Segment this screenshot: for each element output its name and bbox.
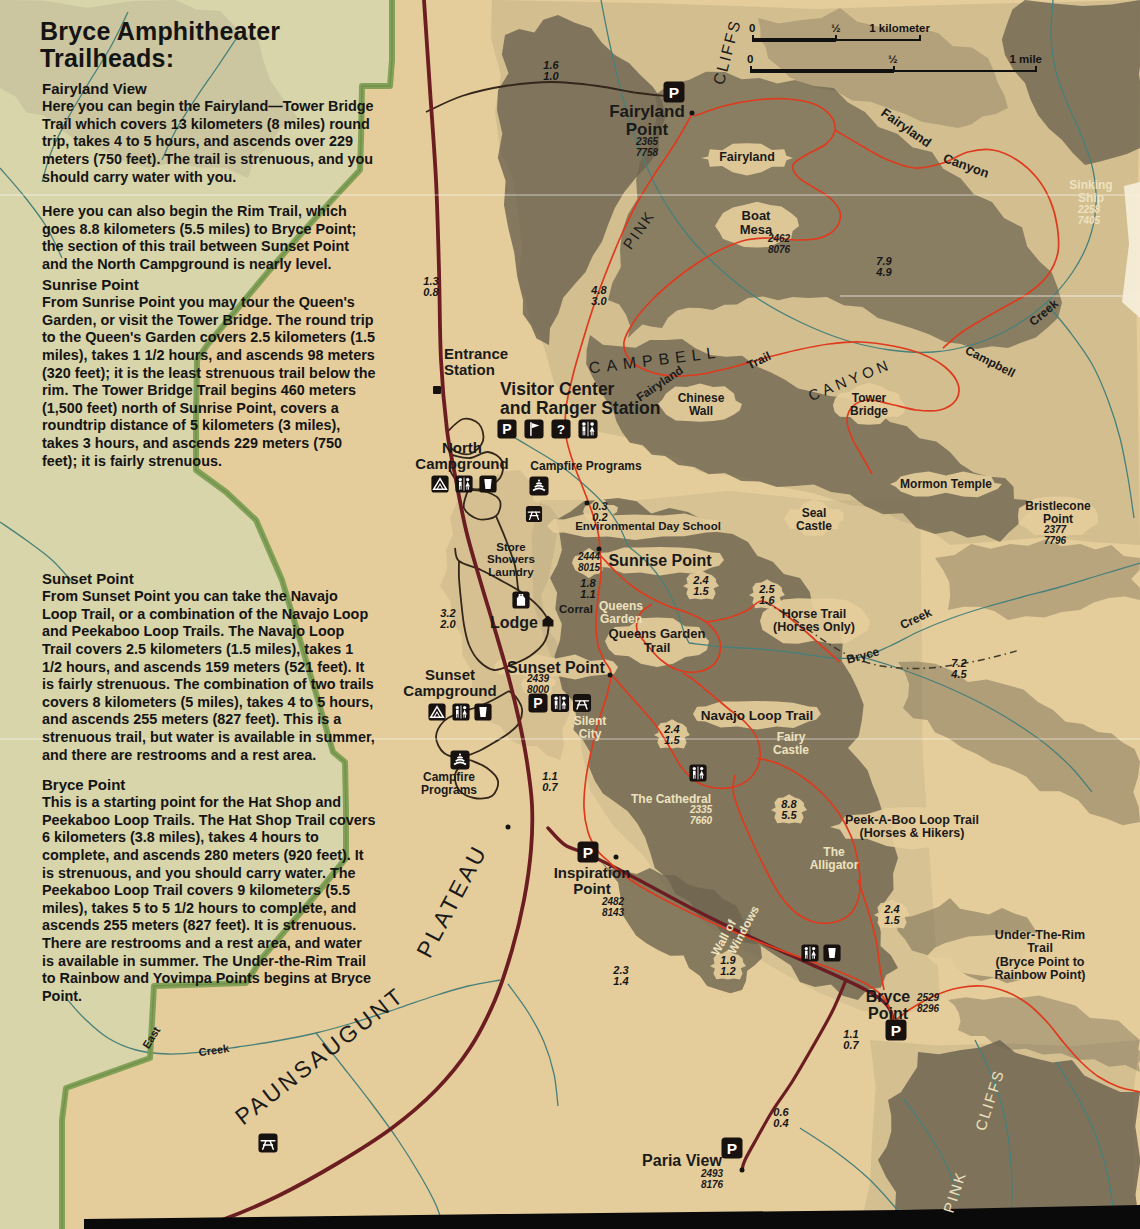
cliffs-upper-label: CLIFFS: [710, 17, 744, 86]
pink-lower-label: PINK: [941, 1169, 970, 1215]
question-icon: ?: [551, 419, 571, 439]
distance-marker: 2.41.5: [693, 575, 708, 597]
sinking-ship-elev: 2258 7405: [1078, 205, 1100, 226]
building-icon: [432, 385, 443, 396]
distance-marker: 2.51.6: [759, 584, 774, 606]
queens-garden-trail-label: Queens Garden Trail: [609, 627, 706, 655]
parking-icon: P: [497, 419, 517, 439]
parking-icon: P: [663, 81, 685, 103]
parking-icon: P: [528, 693, 548, 713]
store-icon: [512, 591, 530, 609]
point-marker-dot: [597, 547, 602, 552]
cliffs-lower-label: CLIFFS: [973, 1067, 1008, 1133]
peek-a-boo-loop-trail-label: Peek-A-Boo Loop Trail (Horses & Hikers): [845, 814, 979, 841]
campfire-icon: [450, 750, 470, 770]
point-marker-dot: [585, 501, 590, 506]
lodge-icon: [541, 614, 556, 629]
distance-marker: 1.10.7: [542, 771, 557, 793]
scale-bar-kilometer: 0 ½ 1 kilometer: [752, 22, 924, 48]
scale-half-label: ½: [888, 53, 898, 65]
parking-icon: P: [721, 1137, 743, 1159]
east-creek-label-1: East: [141, 1025, 163, 1051]
campfire-icon: [529, 476, 549, 496]
distance-marker: 1.61.0: [543, 60, 558, 82]
parking-icon: P: [577, 841, 599, 863]
corral-label: Corral: [559, 603, 593, 615]
picnic-icon: [573, 694, 592, 713]
queens-garden-label: Queens Garden: [599, 600, 643, 626]
campbell-creek-label-2: Creek: [1027, 297, 1061, 328]
bryce-amphitheater-map: CLIFFSPINKFairyland Point2365 7758Fairyl…: [0, 0, 1140, 1229]
sunset-campground-label: Sunset Campground: [403, 667, 496, 699]
east-creek-label-2: Creek: [198, 1043, 230, 1059]
visitor-center-label: Visitor Center and Ranger Station: [500, 380, 660, 417]
distance-marker: 8.85.5: [781, 799, 796, 821]
bryce-point-label: Bryce Point: [866, 988, 910, 1022]
sunset-point-label: Sunset Point: [507, 659, 605, 676]
water-icon: [474, 703, 492, 721]
under-the-rim-trail-label: Under-The-Rim Trail (Bryce Point to Rain…: [990, 929, 1090, 983]
distance-marker: 4.83.0: [591, 285, 606, 307]
sunrise-point-elev: 2444 8015: [578, 552, 600, 573]
entrance-station-label: Entrance Station: [444, 346, 508, 378]
campfire-programs-north-label: Campfire Programs: [530, 460, 641, 473]
seal-castle-label: Seal Castle: [796, 507, 832, 533]
inspiration-point-elev: 2482 8143: [602, 897, 624, 918]
section-heading: Bryce Point: [42, 776, 376, 793]
point-marker-dot: [740, 1168, 745, 1173]
svg-text:P: P: [583, 844, 593, 861]
inspiration-point-label: Inspiration Point: [554, 865, 631, 897]
restroom-icon: [801, 944, 819, 962]
scale-end-label: 1 mile: [1009, 53, 1042, 65]
water-icon: [479, 475, 497, 493]
section-rim-trail: Here you can also begin the Rim Trail, w…: [42, 203, 376, 274]
section-body: Here you can begin the Fairyland—Tower B…: [42, 98, 376, 186]
water-icon: [823, 944, 841, 962]
navajo-loop-trail-label: Navajo Loop Trail: [701, 709, 814, 723]
silent-city-label: Silent City: [574, 715, 607, 741]
svg-text:P: P: [891, 1022, 901, 1039]
distance-marker: 0.30.2: [592, 501, 607, 523]
bryce-creek-label-2: Creek: [898, 606, 934, 632]
distance-marker: 1.81.1: [580, 578, 595, 600]
parking-icon: P: [885, 1019, 907, 1041]
paria-view-label: Paria View: [642, 1152, 722, 1169]
fairyland-point-label: Fairyland Point: [609, 103, 685, 139]
horse-trail-label: Horse Trail (Horses Only): [773, 608, 855, 635]
bristlecone-point-label: Bristlecone Point: [1025, 500, 1090, 526]
section-bryce-point: Bryce Point This is a starting point for…: [42, 776, 376, 1006]
point-marker-dot: [506, 825, 511, 830]
picnic-icon: [526, 506, 543, 523]
scale-bar-mile: 0 ½ 1 mile: [750, 53, 1038, 79]
point-marker-dot: [614, 855, 619, 860]
the-cathedral-elev: 2335 7660: [690, 805, 712, 826]
distance-marker: 2.31.4: [613, 965, 628, 987]
plateau-label: PLATEAU: [412, 840, 492, 961]
distance-marker: 7.94.9: [876, 256, 891, 278]
trailheads-text-panel: Bryce Amphitheater Trailheads: Fairyland…: [40, 18, 382, 72]
section-sunset-point: Sunset Point From Sunset Point you can t…: [42, 570, 376, 764]
pink-upper-label: PINK: [620, 208, 658, 252]
sinking-ship-label: Sinking Ship: [1069, 179, 1112, 205]
chinese-wall-label: Chinese Wall: [678, 392, 725, 418]
fairy-castle-label: Fairy Castle: [773, 731, 809, 757]
svg-text:P: P: [502, 421, 511, 437]
point-marker-dot: [690, 111, 695, 116]
bryce-point-elev: 2529 8296: [917, 993, 939, 1014]
distance-marker: 1.30.8: [423, 276, 438, 298]
section-fairyland-view: Fairyland View Here you can begin the Fa…: [42, 80, 376, 186]
sunrise-point-label: Sunrise Point: [608, 552, 711, 569]
restroom-icon: [452, 703, 470, 721]
distance-marker: 3.22.0: [440, 608, 455, 630]
distance-marker: 2.41.5: [664, 724, 679, 746]
restroom-icon: [689, 764, 707, 782]
store-showers-laundry-label: Store Showers Laundry: [487, 541, 535, 578]
paria-view-elev: 2493 8176: [701, 1169, 723, 1190]
svg-text:P: P: [533, 695, 542, 711]
fairyland-trail-label-2: Trail: [745, 350, 773, 372]
picnic-icon: [258, 1133, 278, 1153]
scale-zero-label: 0: [749, 22, 755, 34]
distance-marker: 0.60.4: [773, 1107, 788, 1129]
campbell-creek-label-1: Campbell: [963, 344, 1017, 380]
bristlecone-point-elev: 2377 7796: [1044, 525, 1066, 546]
fairyland-area-label: Fairyland: [719, 151, 775, 164]
section-heading: Sunset Point: [42, 570, 376, 587]
fairyland-point-elev: 2365 7758: [636, 137, 658, 158]
page-title: Bryce Amphitheater Trailheads:: [40, 18, 382, 72]
restroom-icon: [455, 475, 473, 493]
campfire-programs-south-label: Campfire Programs: [421, 771, 477, 797]
tent-icon: [428, 703, 446, 721]
fairyland-canyon-label-2: Canyon: [941, 151, 991, 180]
scale-zero-label: 0: [747, 53, 753, 65]
svg-text:?: ?: [557, 422, 565, 437]
svg-text:P: P: [669, 84, 679, 101]
bryce-creek-label-1: Bryce: [845, 645, 881, 666]
section-sunrise-point: Sunrise Point From Sunrise Point you may…: [42, 276, 376, 470]
scale-half-label: ½: [831, 22, 841, 34]
restroom-icon: [578, 419, 598, 439]
distance-marker: 7.24.5: [951, 658, 966, 680]
point-marker-dot: [608, 673, 613, 678]
mormon-temple-label: Mormon Temple: [900, 478, 992, 491]
fairyland-canyon-label-1: Fairyland: [878, 106, 933, 151]
tent-icon: [431, 475, 449, 493]
scale-end-label: 1 kilometer: [869, 22, 930, 34]
the-alligator-label: The Alligator: [810, 846, 859, 872]
section-body: Here you can also begin the Rim Trail, w…: [42, 203, 376, 274]
section-body: From Sunrise Point you may tour the Quee…: [42, 294, 376, 470]
section-heading: Sunrise Point: [42, 276, 376, 293]
section-body: From Sunset Point you can take the Navaj…: [42, 588, 376, 764]
section-body: This is a starting point for the Hat Sho…: [42, 794, 376, 1006]
distance-marker: 2.41.5: [884, 904, 899, 926]
north-campground-label: North Campground: [415, 440, 508, 472]
distance-marker: 1.91.2: [720, 955, 735, 977]
restroom-icon: [551, 694, 570, 713]
campbell-canyon-letters-1: CAMPBELL: [588, 343, 722, 376]
flag-icon: [524, 419, 544, 439]
distance-marker: 1.10.7: [843, 1029, 858, 1051]
tower-bridge-label: Tower Bridge: [850, 392, 888, 418]
lodge-label: Lodge: [490, 614, 538, 631]
boat-mesa-elev: 2462 8076: [768, 234, 790, 255]
svg-text:P: P: [727, 1140, 737, 1157]
section-heading: Fairyland View: [42, 80, 376, 97]
